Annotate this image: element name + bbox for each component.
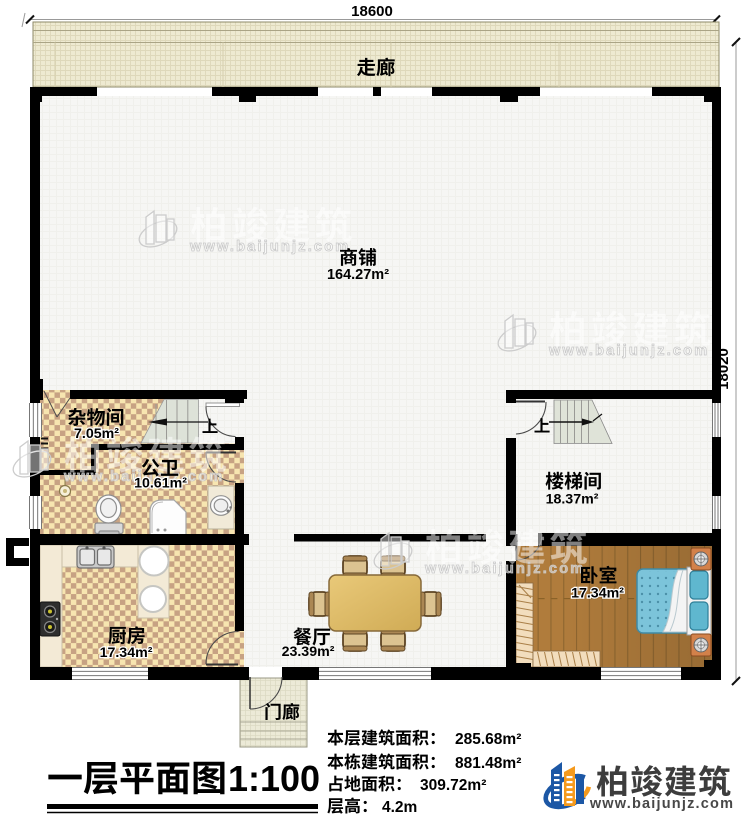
svg-text:164.27m²: 164.27m² (327, 267, 389, 283)
svg-text:881.48m²: 881.48m² (455, 755, 521, 772)
svg-text:www.baijunjz.com: www.baijunjz.com (548, 343, 709, 359)
svg-text:18.37m²: 18.37m² (546, 492, 599, 508)
svg-text:1:100: 1:100 (228, 758, 320, 799)
svg-text:4.2m: 4.2m (382, 799, 417, 816)
svg-text:www.baijunjz.com: www.baijunjz.com (424, 561, 585, 577)
svg-text:18600: 18600 (351, 3, 393, 20)
svg-text:10.61m²: 10.61m² (134, 476, 187, 492)
svg-text:7.05m²: 7.05m² (74, 426, 119, 442)
svg-text:285.68m²: 285.68m² (455, 731, 521, 748)
svg-text:23.39m²: 23.39m² (282, 644, 335, 660)
svg-text:309.72m²: 309.72m² (420, 777, 486, 794)
svg-text:17.34m²: 17.34m² (100, 645, 153, 661)
svg-text:www.baijunjz.com: www.baijunjz.com (189, 239, 350, 255)
svg-text:www.baijunjz.com: www.baijunjz.com (589, 796, 734, 812)
svg-text:17.34m²: 17.34m² (571, 586, 624, 602)
